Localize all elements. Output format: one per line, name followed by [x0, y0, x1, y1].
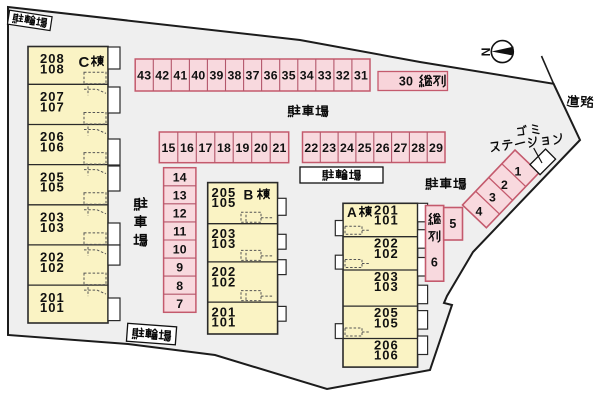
svg-text:101: 101 — [40, 300, 65, 315]
svg-text:107: 107 — [40, 99, 65, 114]
svg-text:30: 30 — [399, 75, 413, 89]
svg-text:C: C — [79, 54, 90, 71]
svg-text:101: 101 — [374, 213, 399, 228]
svg-text:A: A — [347, 205, 357, 220]
svg-text:34: 34 — [300, 69, 314, 83]
svg-text:N: N — [478, 48, 492, 57]
svg-text:106: 106 — [374, 348, 399, 363]
svg-text:2: 2 — [501, 178, 508, 192]
svg-text:5: 5 — [449, 217, 456, 231]
svg-text:25: 25 — [358, 141, 372, 155]
svg-text:103: 103 — [374, 279, 399, 294]
svg-text:11: 11 — [173, 225, 186, 239]
svg-text:105: 105 — [374, 315, 399, 330]
svg-text:13: 13 — [173, 188, 187, 202]
svg-text:41: 41 — [173, 69, 187, 83]
svg-text:23: 23 — [322, 141, 336, 155]
svg-text:103: 103 — [40, 220, 65, 235]
svg-text:20: 20 — [254, 141, 268, 155]
svg-text:12: 12 — [173, 207, 187, 221]
svg-text:10: 10 — [173, 243, 187, 257]
svg-text:22: 22 — [304, 141, 318, 155]
svg-text:6: 6 — [431, 256, 438, 270]
svg-text:105: 105 — [212, 195, 237, 210]
svg-text:101: 101 — [212, 315, 237, 330]
svg-text:37: 37 — [246, 69, 260, 83]
svg-text:8: 8 — [176, 279, 183, 293]
svg-text:42: 42 — [155, 69, 169, 83]
svg-text:28: 28 — [411, 141, 425, 155]
svg-text:102: 102 — [212, 274, 237, 289]
svg-text:32: 32 — [336, 69, 350, 83]
svg-text:24: 24 — [340, 141, 354, 155]
svg-text:38: 38 — [227, 69, 241, 83]
svg-text:26: 26 — [376, 141, 390, 155]
svg-text:105: 105 — [40, 180, 65, 195]
svg-text:36: 36 — [264, 69, 278, 83]
svg-text:31: 31 — [354, 69, 368, 83]
svg-text:33: 33 — [318, 69, 332, 83]
svg-text:15: 15 — [161, 141, 175, 155]
svg-text:29: 29 — [429, 141, 443, 155]
svg-text:39: 39 — [209, 69, 223, 83]
svg-text:16: 16 — [180, 141, 194, 155]
svg-text:40: 40 — [191, 69, 205, 83]
svg-text:7: 7 — [176, 297, 183, 311]
svg-text:18: 18 — [217, 141, 231, 155]
svg-text:35: 35 — [282, 69, 296, 83]
svg-text:102: 102 — [40, 260, 65, 275]
svg-text:14: 14 — [173, 170, 187, 184]
svg-text:27: 27 — [393, 141, 407, 155]
svg-text:102: 102 — [374, 246, 399, 261]
svg-text:108: 108 — [40, 62, 65, 77]
svg-text:9: 9 — [176, 261, 183, 275]
svg-text:103: 103 — [212, 236, 237, 251]
svg-text:17: 17 — [198, 141, 212, 155]
svg-text:4: 4 — [475, 205, 482, 219]
svg-text:43: 43 — [137, 69, 151, 83]
svg-text:106: 106 — [40, 140, 65, 155]
svg-text:B: B — [244, 188, 254, 203]
svg-text:1: 1 — [514, 165, 521, 179]
svg-text:21: 21 — [272, 141, 286, 155]
svg-text:19: 19 — [235, 141, 249, 155]
svg-text:3: 3 — [489, 191, 496, 205]
